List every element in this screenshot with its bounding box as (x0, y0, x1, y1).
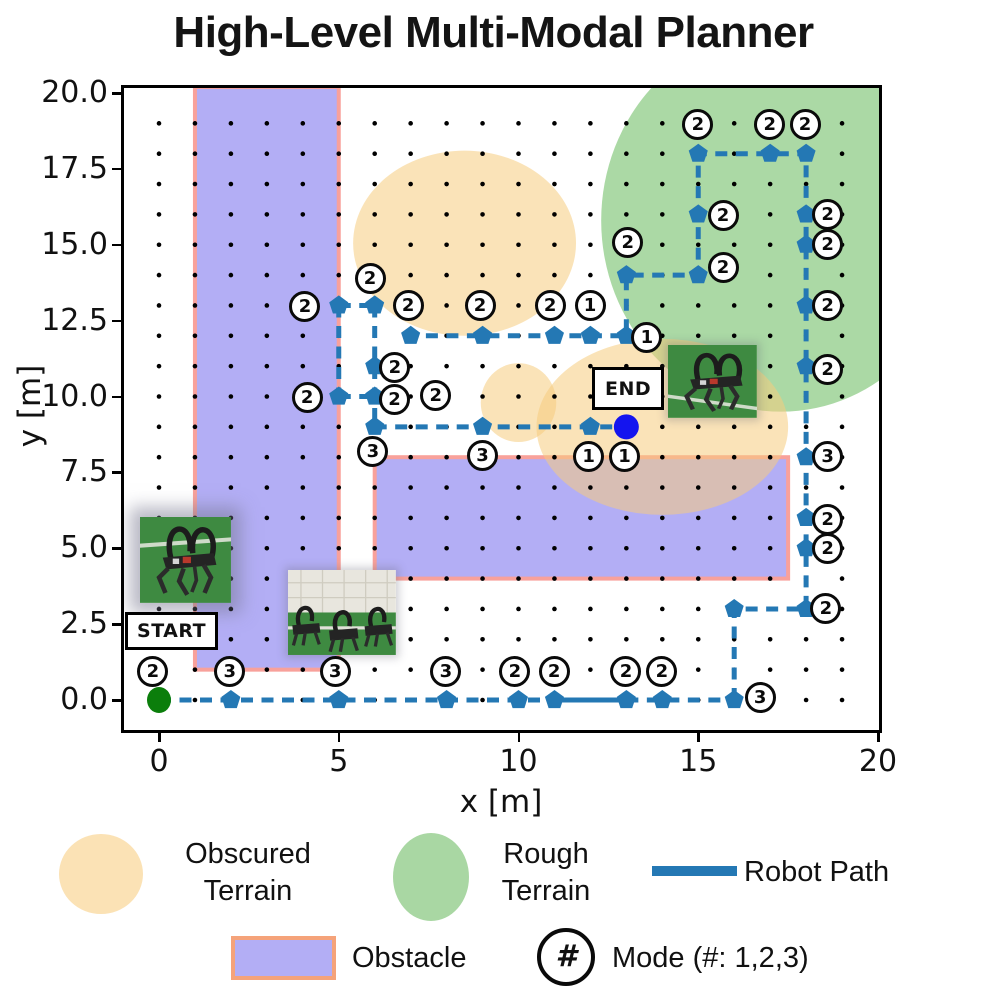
mode-2-annotation: 2 (355, 263, 386, 294)
grid-dot (804, 637, 809, 642)
start-point (147, 687, 171, 713)
grid-dot (804, 182, 809, 187)
y-tick-label: 0.0 (0, 683, 108, 717)
grid-dot (265, 394, 270, 399)
grid-dot (768, 485, 773, 490)
grid-dot (516, 182, 521, 187)
grid-dot (516, 485, 521, 490)
grid-dot (372, 151, 377, 156)
x-tick-mark (877, 733, 880, 742)
grid-dot (301, 455, 306, 460)
grid-dot (336, 546, 341, 551)
grid-dot (444, 151, 449, 156)
grid-dot (301, 516, 306, 521)
grid-dot (696, 576, 701, 581)
grid-dot (768, 334, 773, 339)
grid-dot (444, 182, 449, 187)
grid-dot (768, 667, 773, 672)
mode-2-annotation: 2 (812, 354, 843, 385)
mode-1-annotation: 1 (573, 441, 604, 472)
grid-dot (624, 516, 629, 521)
grid-dot (588, 516, 593, 521)
grid-dot (768, 394, 773, 399)
y-tick-label: 15.0 (0, 228, 108, 262)
grid-dot (516, 273, 521, 278)
waypoint-marker (437, 690, 456, 708)
grid-dot (804, 485, 809, 490)
x-tick-mark (518, 733, 521, 742)
mode-2-annotation: 2 (646, 656, 677, 687)
grid-dot (157, 425, 162, 430)
grid-dot (265, 607, 270, 612)
grid-dot (444, 576, 449, 581)
mode-2-annotation: 2 (812, 504, 843, 535)
grid-dot (157, 607, 162, 612)
grid-dot (336, 182, 341, 187)
grid-dot (768, 516, 773, 521)
grid-dot (480, 485, 485, 490)
mode-2-annotation: 2 (393, 290, 424, 321)
grid-dot (193, 425, 198, 430)
grid-dot (229, 364, 234, 369)
grid-dot (408, 212, 413, 217)
grid-dot (768, 576, 773, 581)
grid-dot (516, 576, 521, 581)
grid-dot (696, 546, 701, 551)
grid-dot (696, 242, 701, 247)
grid-dot (444, 637, 449, 642)
grid-dot (444, 303, 449, 308)
mode-1-annotation: 1 (575, 290, 606, 321)
grid-dot (516, 242, 521, 247)
y-tick-label: 5.0 (0, 531, 108, 565)
grid-dot (480, 546, 485, 551)
grid-dot (516, 212, 521, 217)
grid-dot (480, 121, 485, 126)
grid-dot (408, 546, 413, 551)
grid-dot (768, 455, 773, 460)
grid-dot (588, 485, 593, 490)
grid-dot (732, 425, 737, 430)
grid-dot (804, 425, 809, 430)
grid-dot (157, 121, 162, 126)
waypoint-marker (545, 326, 564, 344)
figure: High-Level Multi-Modal Planner STARTEND2… (0, 0, 987, 987)
start-label: START (125, 612, 218, 650)
grid-dot (624, 151, 629, 156)
grid-dot (157, 394, 162, 399)
grid-dot (696, 455, 701, 460)
waypoint-marker (617, 690, 636, 708)
grid-dot (408, 516, 413, 521)
mode-2-annotation: 2 (465, 290, 496, 321)
grid-dot (588, 576, 593, 581)
grid-dot (193, 273, 198, 278)
mode-2-annotation: 2 (379, 384, 410, 415)
grid-dot (229, 485, 234, 490)
grid-dot (336, 151, 341, 156)
x-tick-mark (697, 733, 700, 742)
grid-dot (552, 151, 557, 156)
grid-dot (157, 151, 162, 156)
x-tick-label: 5 (289, 744, 389, 779)
y-tick-mark (112, 320, 121, 323)
grid-dot (229, 607, 234, 612)
grid-dot (516, 546, 521, 551)
grid-dot (408, 455, 413, 460)
grid-dot (804, 698, 809, 703)
mode-legend-icon: # (537, 928, 595, 986)
grid-dot (552, 273, 557, 278)
waypoint-marker (545, 690, 564, 708)
grid-dot (660, 516, 665, 521)
y-tick-mark (112, 244, 121, 247)
grid-dot (696, 334, 701, 339)
grid-dot (265, 273, 270, 278)
grid-dot (444, 607, 449, 612)
grid-dot (157, 182, 162, 187)
grid-dot (552, 485, 557, 490)
grid-dot (336, 485, 341, 490)
grid-dot (265, 212, 270, 217)
grid-dot (229, 303, 234, 308)
y-tick-mark (112, 471, 121, 474)
waypoint-marker (581, 326, 600, 344)
grid-dot (552, 637, 557, 642)
grid-dot (444, 546, 449, 551)
grid-dot (516, 364, 521, 369)
grid-dot (624, 182, 629, 187)
grid-dot (193, 212, 198, 217)
grid-dot (516, 151, 521, 156)
grid-dot (336, 455, 341, 460)
grid-dot (768, 303, 773, 308)
grid-dot (480, 364, 485, 369)
waypoint-marker (653, 690, 672, 708)
y-tick-mark (112, 92, 121, 95)
waypoint-marker (509, 690, 528, 708)
mode-3-annotation: 3 (812, 441, 843, 472)
mode-2-annotation: 2 (812, 533, 843, 564)
grid-dot (265, 455, 270, 460)
grid-dot (732, 121, 737, 126)
grid-dot (588, 637, 593, 642)
waypoint-marker (401, 326, 420, 344)
grid-dot (157, 364, 162, 369)
grid-dot (408, 182, 413, 187)
grid-dot (696, 607, 701, 612)
grid-dot (229, 182, 234, 187)
grid-dot (840, 485, 845, 490)
grid-dot (552, 121, 557, 126)
grid-dot (660, 182, 665, 187)
grid-dot (193, 303, 198, 308)
grid-dot (372, 546, 377, 551)
grid-dot (624, 607, 629, 612)
obstacle-swatch (231, 936, 336, 980)
grid-dot (265, 334, 270, 339)
grid-dot (265, 576, 270, 581)
chart-title: High-Level Multi-Modal Planner (0, 8, 987, 58)
x-tick-mark (158, 733, 161, 742)
grid-dot (840, 121, 845, 126)
grid-dot (372, 516, 377, 521)
grid-dot (157, 455, 162, 460)
grid-dot (408, 637, 413, 642)
grid-dot (552, 516, 557, 521)
grid-dot (301, 242, 306, 247)
grid-dot (265, 121, 270, 126)
grid-dot (768, 182, 773, 187)
end-label: END (592, 367, 664, 410)
grid-dot (157, 334, 162, 339)
grid-dot (301, 273, 306, 278)
grid-dot (408, 425, 413, 430)
grid-dot (265, 516, 270, 521)
y-tick-mark (112, 168, 121, 171)
grid-dot (301, 425, 306, 430)
grid-dot (660, 212, 665, 217)
grid-dot (193, 698, 198, 703)
x-tick-mark (338, 733, 341, 742)
mode-2-annotation: 2 (539, 656, 570, 687)
grid-dot (624, 576, 629, 581)
mode-2-annotation: 2 (535, 290, 566, 321)
grid-dot (840, 425, 845, 430)
grid-dot (840, 667, 845, 672)
grid-dot (444, 121, 449, 126)
grid-dot (516, 303, 521, 308)
grid-dot (336, 212, 341, 217)
grid-dot (444, 455, 449, 460)
y-tick-label: 2.5 (0, 607, 108, 641)
grid-dot (336, 516, 341, 521)
obscured-terrain-patch (481, 363, 556, 442)
mode-2-annotation: 2 (292, 382, 323, 413)
grid-dot (336, 242, 341, 247)
x-tick-label: 10 (469, 744, 569, 779)
grid-dot (301, 334, 306, 339)
mode-1-annotation: 1 (609, 441, 640, 472)
grid-dot (732, 516, 737, 521)
grid-dot (624, 637, 629, 642)
grid-dot (768, 212, 773, 217)
grid-dot (552, 394, 557, 399)
grid-dot (265, 667, 270, 672)
grid-dot (265, 364, 270, 369)
grid-dot (768, 364, 773, 369)
grid-dot (301, 667, 306, 672)
grid-dot (444, 364, 449, 369)
plot-area: STARTEND23332222322232222222222122212222… (121, 85, 882, 733)
grid-dot (480, 242, 485, 247)
grid-dot (696, 425, 701, 430)
waypoint-marker (221, 690, 240, 708)
mode-2-annotation: 2 (708, 252, 739, 283)
grid-dot (624, 546, 629, 551)
mode-2-annotation: 2 (790, 109, 821, 140)
grid-dot (229, 212, 234, 217)
obstacle-label: Obstacle (352, 940, 466, 977)
grid-dot (336, 121, 341, 126)
grid-dot (588, 546, 593, 551)
grid-dot (229, 334, 234, 339)
mode-2-annotation: 2 (610, 656, 641, 687)
grid-dot (516, 637, 521, 642)
waypoint-marker (725, 690, 744, 708)
grid-dot (444, 273, 449, 278)
grid-dot (336, 273, 341, 278)
grid-dot (229, 394, 234, 399)
robot-photo-mid (288, 570, 396, 655)
grid-dot (229, 242, 234, 247)
y-tick-mark (112, 699, 121, 702)
x-tick-label: 20 (828, 744, 928, 779)
grid-dot (516, 394, 521, 399)
grid-dot (265, 151, 270, 156)
grid-dot (660, 121, 665, 126)
grid-dot (157, 212, 162, 217)
grid-dot (804, 667, 809, 672)
grid-dot (480, 667, 485, 672)
y-tick-label: 12.5 (0, 304, 108, 338)
y-tick-label: 17.5 (0, 152, 108, 186)
grid-dot (336, 425, 341, 430)
grid-dot (372, 121, 377, 126)
grid-dot (552, 455, 557, 460)
grid-dot (768, 546, 773, 551)
plot-canvas: STARTEND23332222322232222222222122212222… (124, 88, 879, 730)
grid-dot (480, 516, 485, 521)
grid-dot (588, 151, 593, 156)
waypoint-marker (725, 599, 744, 617)
grid-dot (480, 637, 485, 642)
grid-dot (301, 364, 306, 369)
grid-dot (696, 637, 701, 642)
grid-dot (408, 242, 413, 247)
mode-3-annotation: 3 (320, 656, 351, 687)
y-tick-label: 10.0 (0, 380, 108, 414)
mode-hash-symbol: # (556, 939, 577, 974)
grid-dot (552, 607, 557, 612)
y-tick-mark (112, 623, 121, 626)
grid-dot (229, 455, 234, 460)
grid-dot (516, 607, 521, 612)
grid-dot (408, 607, 413, 612)
grid-dot (480, 698, 485, 703)
grid-dot (193, 607, 198, 612)
grid-dot (840, 273, 845, 278)
grid-dot (552, 425, 557, 430)
grid-dot (193, 242, 198, 247)
grid-dot (624, 121, 629, 126)
grid-dot (660, 425, 665, 430)
x-tick-label: 0 (109, 744, 209, 779)
grid-dot (768, 425, 773, 430)
grid-dot (732, 334, 737, 339)
grid-dot (696, 516, 701, 521)
grid-dot (301, 546, 306, 551)
grid-dot (229, 425, 234, 430)
grid-dot (193, 334, 198, 339)
grid-dot (193, 455, 198, 460)
grid-dot (840, 637, 845, 642)
robot-photo-start (140, 517, 231, 603)
grid-dot (372, 212, 377, 217)
grid-dot (660, 607, 665, 612)
grid-dot (552, 576, 557, 581)
grid-dot (265, 637, 270, 642)
grid-dot (552, 212, 557, 217)
grid-dot (840, 151, 845, 156)
grid-dot (552, 546, 557, 551)
grid-dot (588, 121, 593, 126)
grid-dot (444, 485, 449, 490)
grid-dot (229, 637, 234, 642)
grid-dot (372, 667, 377, 672)
mode-2-annotation: 2 (810, 593, 841, 624)
grid-dot (265, 425, 270, 430)
obscured-terrain-label: ObscuredTerrain (153, 836, 343, 910)
grid-dot (408, 485, 413, 490)
grid-dot (480, 394, 485, 399)
mode-2-annotation: 2 (499, 656, 530, 687)
grid-dot (732, 485, 737, 490)
grid-dot (480, 182, 485, 187)
grid-dot (444, 242, 449, 247)
grid-dot (732, 576, 737, 581)
grid-dot (660, 151, 665, 156)
grid-dot (660, 485, 665, 490)
grid-dot (660, 242, 665, 247)
mode-2-annotation: 2 (812, 290, 843, 321)
grid-dot (193, 182, 198, 187)
grid-dot (840, 698, 845, 703)
grid-dot (408, 576, 413, 581)
y-tick-mark (112, 396, 121, 399)
grid-dot (301, 151, 306, 156)
grid-dot (732, 182, 737, 187)
grid-dot (301, 212, 306, 217)
grid-dot (696, 303, 701, 308)
grid-dot (732, 303, 737, 308)
grid-dot (696, 182, 701, 187)
grid-dot (660, 303, 665, 308)
y-tick-label: 7.5 (0, 455, 108, 489)
obscured-terrain-swatch (59, 834, 143, 914)
y-tick-label: 20.0 (0, 76, 108, 110)
grid-dot (193, 121, 198, 126)
grid-dot (696, 667, 701, 672)
grid-dot (552, 242, 557, 247)
rough-terrain-swatch (393, 833, 469, 921)
grid-dot (265, 242, 270, 247)
grid-dot (696, 485, 701, 490)
grid-dot (229, 151, 234, 156)
grid-dot (768, 242, 773, 247)
robot-path-label: Robot Path (744, 854, 889, 891)
robot-path-swatch (652, 866, 737, 876)
grid-dot (265, 182, 270, 187)
grid-dot (660, 546, 665, 551)
grid-dot (732, 455, 737, 460)
grid-dot (516, 121, 521, 126)
grid-dot (480, 576, 485, 581)
grid-dot (444, 212, 449, 217)
grid-dot (624, 485, 629, 490)
y-tick-mark (112, 547, 121, 550)
grid-dot (480, 151, 485, 156)
